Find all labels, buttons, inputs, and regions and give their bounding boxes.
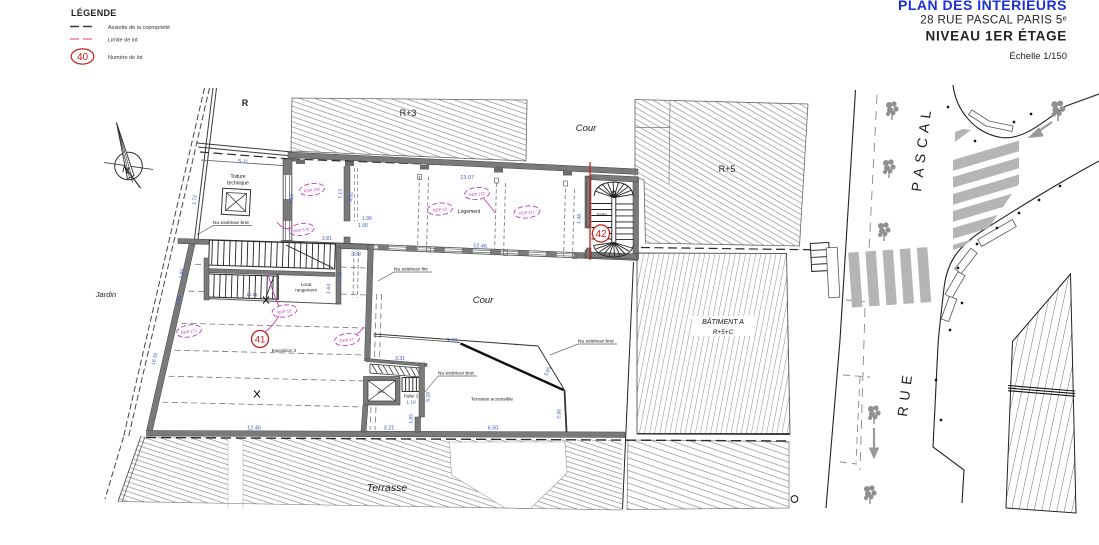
svg-text:Limite de lot: Limite de lot <box>108 38 138 44</box>
svg-text:11.16: 11.16 <box>246 292 258 297</box>
svg-text:40: 40 <box>77 52 89 63</box>
svg-text:1.85: 1.85 <box>408 414 415 424</box>
svg-text:Palier: Palier <box>597 212 608 217</box>
svg-text:4.02: 4.02 <box>348 192 355 202</box>
svg-text:5.18: 5.18 <box>289 194 296 204</box>
svg-text:5.28: 5.28 <box>425 392 432 402</box>
svg-text:2.96: 2.96 <box>556 409 563 419</box>
svg-text:R+5+C: R+5+C <box>713 329 734 336</box>
svg-text:2.81: 2.81 <box>322 236 332 242</box>
svg-text:Terrasse: Terrasse <box>367 482 408 494</box>
svg-text:1.64: 1.64 <box>326 284 333 294</box>
svg-text:Nu extérieur brut: Nu extérieur brut <box>438 371 474 377</box>
svg-text:technique: technique <box>227 181 249 187</box>
svg-text:Terrasse accessible: Terrasse accessible <box>471 397 513 403</box>
svg-text:41: 41 <box>255 335 266 346</box>
svg-text:Exposition 2: Exposition 2 <box>272 348 297 353</box>
svg-text:Cour: Cour <box>473 295 494 306</box>
svg-text:BÂTIMENT A: BÂTIMENT A <box>702 317 744 326</box>
svg-text:1.72: 1.72 <box>191 194 198 205</box>
svg-text:28 RUE PASCAL PARIS 5e: 28 RUE PASCAL PARIS 5e <box>920 15 1067 27</box>
svg-text:6.50: 6.50 <box>488 426 499 432</box>
svg-text:1.13: 1.13 <box>337 189 344 199</box>
svg-text:1.10: 1.10 <box>406 400 416 406</box>
svg-text:3.21: 3.21 <box>384 426 395 432</box>
svg-text:13.07: 13.07 <box>460 175 474 182</box>
svg-text:Logement: Logement <box>458 209 481 215</box>
svg-text:12.46: 12.46 <box>247 426 261 432</box>
svg-text:NIVEAU 1ER ÉTAGE: NIVEAU 1ER ÉTAGE <box>926 29 1067 44</box>
svg-text:1.96: 1.96 <box>362 216 372 222</box>
svg-text:PLAN DES INTÉRIEURS: PLAN DES INTÉRIEURS <box>898 0 1067 13</box>
svg-text:rangement: rangement <box>295 288 317 293</box>
svg-text:Nu extérieur brut: Nu extérieur brut <box>578 339 614 345</box>
svg-text:42: 42 <box>595 229 607 240</box>
svg-text:R+5: R+5 <box>719 164 736 174</box>
svg-text:3.79: 3.79 <box>337 272 344 282</box>
svg-text:Échelle 1/150: Échelle 1/150 <box>1009 51 1067 62</box>
svg-text:R+3: R+3 <box>400 108 417 118</box>
svg-text:ASC: ASC <box>378 390 386 394</box>
svg-text:Cour: Cour <box>576 123 597 134</box>
svg-text:5.11: 5.11 <box>238 159 249 166</box>
svg-text:Nu extérieur fini: Nu extérieur fini <box>394 267 428 273</box>
svg-text:R: R <box>242 98 249 108</box>
svg-text:1.90: 1.90 <box>358 223 368 229</box>
svg-text:9.78: 9.78 <box>447 338 458 345</box>
svg-text:3.31: 3.31 <box>395 356 405 362</box>
svg-text:Nu extérieur brut: Nu extérieur brut <box>213 220 249 226</box>
svg-text:12.46: 12.46 <box>473 243 487 250</box>
svg-text:Toiture: Toiture <box>230 174 245 180</box>
svg-text:Assiette de la copropriété: Assiette de la copropriété <box>108 25 170 31</box>
svg-text:LÉGENDE: LÉGENDE <box>71 8 117 18</box>
svg-text:Jardin: Jardin <box>95 290 116 299</box>
svg-text:Numéro de lot: Numéro de lot <box>108 55 143 61</box>
svg-text:1.48: 1.48 <box>576 214 583 224</box>
svg-text:2.33: 2.33 <box>351 252 361 258</box>
svg-text:Palier 2: Palier 2 <box>404 394 419 399</box>
svg-text:Local: Local <box>301 282 312 287</box>
